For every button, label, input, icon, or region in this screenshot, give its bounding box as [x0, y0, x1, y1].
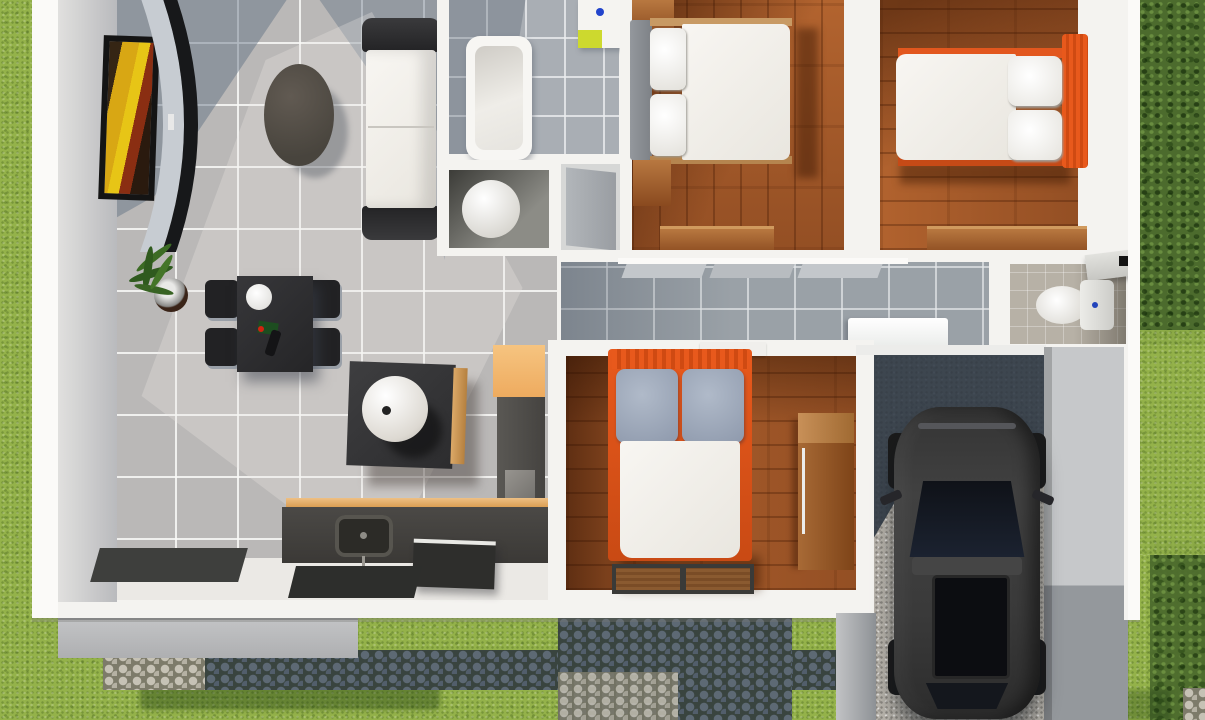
stove-mat-dark: [288, 566, 422, 598]
oval-coffee-table: [264, 64, 334, 166]
bed2-pillow: [1008, 110, 1062, 160]
washbasin-faucet: [596, 8, 604, 16]
right-outer-wall: [1128, 0, 1140, 620]
driveway-left-wall: [836, 613, 876, 720]
table-plate: [246, 284, 272, 310]
potted-plant: [128, 252, 192, 316]
toilet-flush-button: [1092, 302, 1098, 308]
garage-lintel: [856, 345, 1046, 355]
bed3-pillow-gray: [616, 369, 678, 443]
bed1-duvet: [682, 24, 790, 160]
entry-step: [58, 618, 358, 658]
orange-counter-cabinet: [493, 345, 545, 397]
bed2-headboard-orange: [1062, 34, 1088, 168]
appliance-box: [412, 539, 496, 590]
dining-chair: [205, 328, 239, 366]
white-sofa: [362, 18, 440, 240]
garden-bushes-top-right: [1138, 0, 1205, 345]
sphere-lamp-fitting: [382, 406, 391, 415]
curved-tv-unit: [128, 0, 212, 252]
bed1-shadow: [796, 28, 818, 178]
bed2-duvet: [896, 54, 1016, 160]
door-mat: [612, 564, 684, 594]
door-mat: [682, 564, 754, 594]
sliding-door-panel: [797, 264, 882, 278]
round-toilet: [462, 180, 520, 238]
car-windshield: [906, 481, 1028, 557]
sofa-cushions: [366, 50, 436, 208]
sink-drain: [360, 532, 367, 539]
garage-right-wall: [1044, 347, 1128, 720]
sliding-door-panel: [621, 264, 706, 278]
door-leaf: [566, 167, 616, 250]
bedroom3-wardrobe-top: [798, 413, 854, 443]
car-roof-rack: [918, 423, 1016, 429]
cobblestone-patio-sunlit: [558, 672, 678, 720]
sofa-cushion-seam: [368, 126, 434, 128]
bed3-headboard-orange: [612, 349, 748, 369]
washbasin-lime-side: [578, 30, 602, 48]
sphere-lamp: [362, 376, 428, 442]
dining-chair: [205, 280, 239, 318]
bedroom1-nightstand: [633, 160, 671, 206]
left-outer-wall: [32, 0, 58, 618]
garden-grass-right: [1138, 330, 1205, 555]
bathtub-inner: [475, 46, 523, 150]
car-sunroof: [932, 575, 1010, 679]
bed2-pillow: [1008, 56, 1062, 106]
sofa-armrest-bottom: [362, 206, 440, 240]
floor-plan-render: [0, 0, 1205, 720]
bed3-duvet: [620, 441, 740, 558]
bed3-pillow-gray: [682, 369, 744, 443]
car-roof: [912, 557, 1022, 575]
bed1-pillow: [650, 28, 686, 90]
plant-pot: [154, 278, 188, 312]
bed1-headboard: [630, 20, 652, 160]
sofa-armrest-top: [362, 18, 440, 52]
sliding-door-panel: [709, 264, 794, 278]
wardrobe-handle: [802, 448, 805, 534]
garage: [856, 345, 1140, 720]
bed1-pillow: [650, 94, 686, 156]
floor-mat-dark: [90, 548, 248, 582]
cobblestone-corner: [1183, 688, 1205, 720]
car: [892, 407, 1042, 720]
table-fruit: [258, 326, 264, 332]
